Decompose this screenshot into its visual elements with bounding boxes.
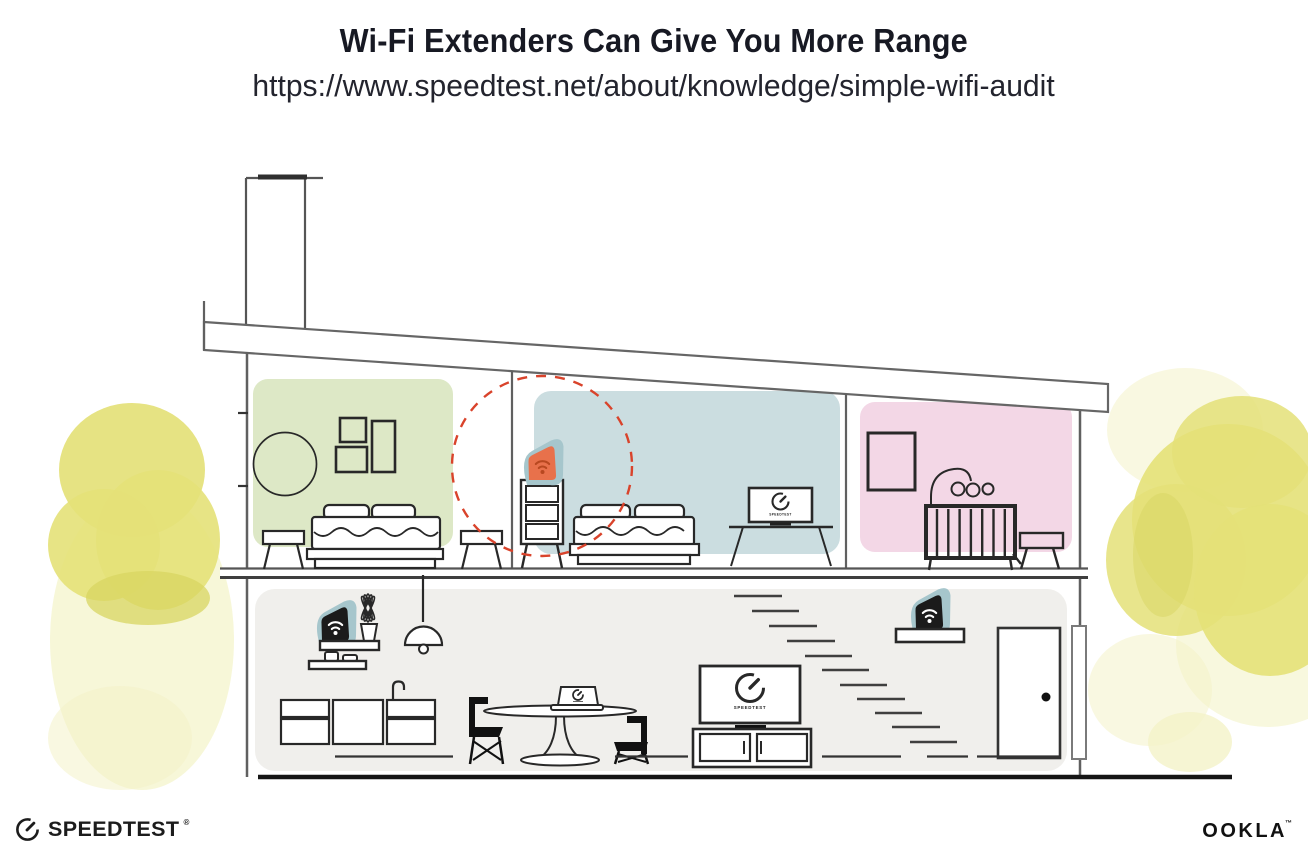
door bbox=[998, 628, 1060, 758]
shelf-upper bbox=[320, 641, 379, 650]
living-room-tv: SPEEDTEST bbox=[700, 666, 800, 729]
nightstand-right bbox=[461, 531, 502, 569]
page-header: Wi-Fi Extenders Can Give You More Range … bbox=[0, 22, 1308, 104]
bush-left bbox=[48, 403, 234, 790]
ookla-logo: OOKLA ™ bbox=[1202, 820, 1294, 843]
door-knob bbox=[1042, 693, 1051, 702]
wifi-extender-device bbox=[524, 439, 564, 485]
living-room-tv-label: SPEEDTEST bbox=[734, 705, 766, 710]
tv-console bbox=[693, 729, 811, 767]
page-title: Wi-Fi Extenders Can Give You More Range bbox=[340, 22, 968, 60]
source-url: https://www.speedtest.net/about/knowledg… bbox=[253, 68, 1055, 104]
registered-mark: ® bbox=[183, 818, 189, 827]
speedtest-logo: SPEEDTEST ® bbox=[14, 816, 192, 843]
bedroom-tv-label: SPEEDTEST bbox=[769, 513, 792, 517]
nightstand-left bbox=[263, 531, 304, 569]
ookla-wordmark: OOKLA bbox=[1202, 820, 1287, 843]
shelf-lower bbox=[309, 661, 366, 669]
gauge-icon bbox=[14, 816, 41, 843]
downspout bbox=[1072, 626, 1086, 759]
chimney bbox=[246, 177, 323, 330]
bush-right bbox=[1088, 368, 1308, 772]
plant bbox=[360, 594, 377, 641]
trademark-mark: ™ bbox=[1285, 820, 1292, 827]
house-illustration: SPEEDTEST bbox=[0, 150, 1308, 810]
nursery-pink-background bbox=[860, 402, 1072, 552]
speedtest-wordmark: SPEEDTEST bbox=[48, 817, 179, 842]
router-shelf bbox=[896, 629, 964, 642]
bed bbox=[570, 505, 699, 564]
